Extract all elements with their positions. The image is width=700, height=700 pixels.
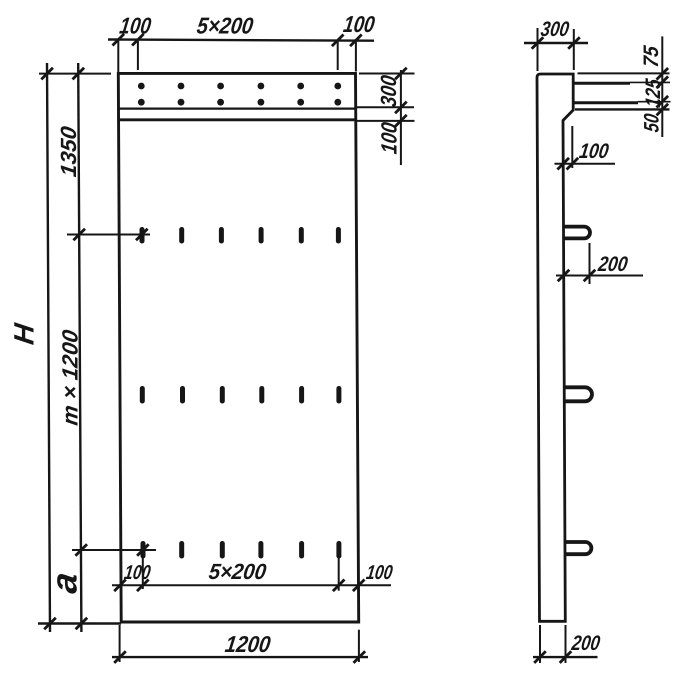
svg-text:5×200: 5×200 (207, 559, 268, 584)
svg-text:100: 100 (342, 11, 377, 37)
svg-text:50: 50 (641, 112, 664, 133)
svg-text:100: 100 (377, 120, 402, 155)
svg-text:1350: 1350 (56, 124, 81, 178)
svg-text:300: 300 (376, 73, 401, 108)
svg-text:100: 100 (123, 562, 152, 584)
svg-text:100: 100 (118, 13, 153, 39)
svg-text:200: 200 (569, 632, 601, 655)
svg-text:200: 200 (596, 253, 629, 276)
svg-text:m × 1200: m × 1200 (58, 327, 83, 426)
svg-text:5×200: 5×200 (195, 13, 255, 39)
svg-text:1200: 1200 (224, 631, 273, 657)
svg-text:125: 125 (642, 77, 665, 108)
svg-text:100: 100 (365, 562, 394, 584)
svg-text:300: 300 (539, 18, 570, 41)
svg-text:H: H (8, 321, 39, 346)
svg-text:75: 75 (640, 44, 663, 69)
svg-text:100: 100 (578, 140, 610, 163)
